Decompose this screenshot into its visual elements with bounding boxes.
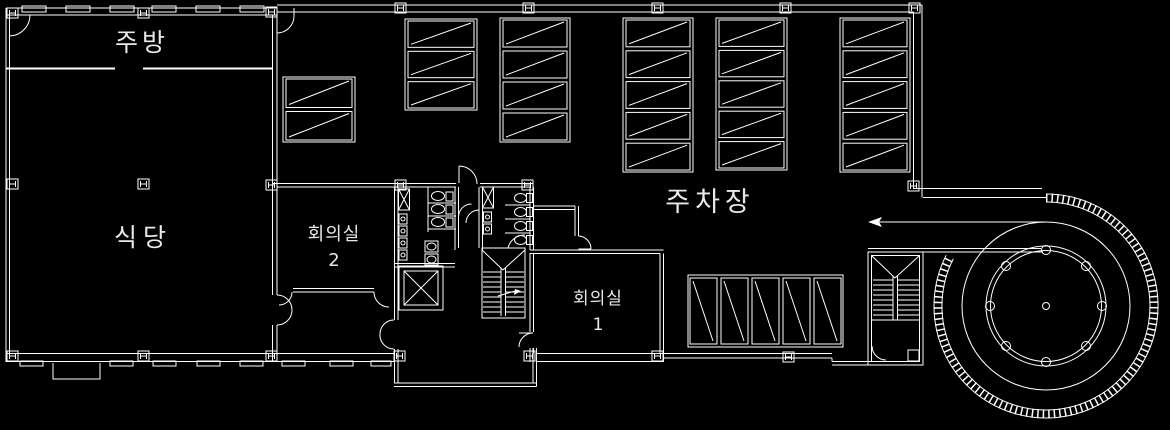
entrance-porch <box>53 363 100 379</box>
parking-group-top-3 <box>500 18 570 142</box>
floor-plan-canvas: 주방 식당 회의실 2 회의실 1 주차장 <box>0 0 1170 430</box>
parking-group-top-6 <box>840 18 910 172</box>
parking-group-top-1 <box>283 77 355 142</box>
windows-layer <box>20 6 391 379</box>
sink-icon <box>425 241 438 252</box>
toilet-icon <box>432 205 454 215</box>
urinal-icon <box>399 226 407 236</box>
floor-plan: 주방 식당 회의실 2 회의실 1 주차장 <box>0 0 1170 430</box>
room-label-dining: 식당 <box>114 223 172 252</box>
room-number-meeting2: 2 <box>328 250 339 271</box>
east-staircase <box>868 252 923 365</box>
parking-group-top-4 <box>623 18 693 172</box>
walls-layer <box>6 5 922 387</box>
parking-group-bottom-row <box>688 275 843 347</box>
toilet-icon <box>432 192 454 202</box>
urinal-icon <box>484 212 492 222</box>
ramp-center-point <box>1043 303 1050 310</box>
toilet-icon <box>432 218 454 228</box>
labels-layer: 주방 식당 회의실 2 회의실 1 주차장 <box>114 28 755 335</box>
urinal-icon <box>484 224 492 234</box>
urinal-icon <box>399 214 407 224</box>
elevator <box>399 266 443 310</box>
parking-group-top-2 <box>405 19 477 110</box>
room-label-parking: 주차장 <box>665 187 755 218</box>
room-label-meeting1: 회의실 <box>573 289 623 309</box>
spiral-ramp <box>868 189 1158 419</box>
room-label-kitchen: 주방 <box>115 28 169 57</box>
ramp-lane-circle <box>962 222 1130 390</box>
restroom-fixtures <box>399 187 533 265</box>
room-label-meeting2: 회의실 <box>308 224 361 245</box>
urinal-icon <box>399 250 407 260</box>
room-number-meeting1: 1 <box>593 315 604 335</box>
doors-layer <box>9 8 591 349</box>
urinal-icon <box>399 238 407 248</box>
center-staircase <box>482 248 525 318</box>
parking-group-top-5 <box>716 18 787 170</box>
